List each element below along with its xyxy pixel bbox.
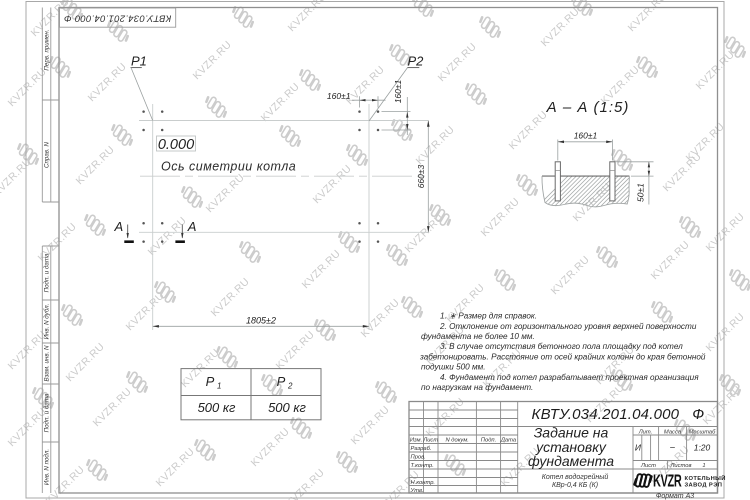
svg-text:KVZR: KVZR [653, 471, 682, 491]
svg-text:Масса: Масса [664, 430, 682, 436]
svg-text:1805±2: 1805±2 [246, 316, 276, 326]
svg-text:Инв. N подл.: Инв. N подл. [43, 449, 50, 485]
svg-text:А – А (1:5): А – А (1:5) [546, 99, 630, 116]
svg-text:Лит.: Лит. [638, 430, 653, 436]
svg-text:Лист: Лист [422, 438, 438, 444]
svg-text:Ось симетрии котла: Ось симетрии котла [161, 160, 296, 174]
svg-text:KVZR.RU: KVZR.RU [64, 341, 108, 385]
svg-text:Подп. и дата: Подп. и дата [43, 253, 50, 292]
svg-text:KVZR.RU: KVZR.RU [507, 109, 551, 153]
svg-text:Перв. примен.: Перв. примен. [43, 29, 50, 70]
svg-text:KVZR.RU: KVZR.RU [154, 446, 198, 490]
svg-text:KVZR.RU: KVZR.RU [191, 39, 235, 83]
svg-text:KVZR.RU: KVZR.RU [649, 239, 693, 283]
svg-text:N докум.: N докум. [445, 438, 468, 444]
svg-text:Формат А3: Формат А3 [656, 493, 694, 500]
svg-text:KVZR.RU: KVZR.RU [349, 404, 393, 448]
svg-text:KVZR.RU: KVZR.RU [694, 49, 738, 93]
svg-text:–: – [669, 442, 675, 452]
svg-text:KVZR.RU: KVZR.RU [359, 297, 403, 341]
svg-text:КВТУ.034.201.04.000 Ф: КВТУ.034.201.04.000 Ф [532, 406, 705, 423]
svg-text:KVZR.RU: KVZR.RU [704, 211, 748, 255]
svg-text:KVZR.RU: KVZR.RU [626, 0, 670, 34]
svg-text:P1: P1 [131, 54, 147, 69]
svg-text:Масштаб: Масштаб [689, 430, 716, 436]
svg-text:1: 1 [217, 382, 221, 391]
svg-text:Утв.: Утв. [410, 488, 424, 494]
svg-text:Пров.: Пров. [411, 455, 426, 461]
svg-text:A: A [114, 219, 124, 234]
svg-text:KVZR.RU: KVZR.RU [249, 426, 293, 470]
svg-text:P: P [277, 374, 286, 389]
svg-text:160±1: 160±1 [327, 91, 351, 101]
svg-text:KVZR.RU: KVZR.RU [549, 254, 593, 298]
svg-text:Справ. N: Справ. N [43, 142, 50, 168]
svg-text:по нагрузкам на фундамент.: по нагрузкам на фундамент. [421, 383, 533, 392]
svg-text:KVZR.RU: KVZR.RU [91, 386, 135, 430]
svg-text:Подп.: Подп. [481, 438, 496, 444]
svg-text:KVZR.RU: KVZR.RU [86, 61, 130, 105]
svg-text:KVZR.RU: KVZR.RU [300, 248, 344, 292]
svg-text:500 кг: 500 кг [268, 400, 306, 415]
svg-text:50±1: 50±1 [636, 183, 646, 202]
svg-text:1: 1 [702, 463, 705, 469]
svg-text:подушки 500 мм.: подушки 500 мм. [421, 363, 486, 372]
svg-text:3. В случае отсутствия бетонно: 3. В случае отсутствия бетонного пола пл… [440, 342, 683, 351]
svg-text:KVZR.RU: KVZR.RU [204, 172, 248, 216]
svg-text:2. Отклонение от горизонтально: 2. Отклонение от горизонтального уровня … [439, 322, 697, 331]
svg-text:фундамента не более 10 мм.: фундамента не более 10 мм. [421, 332, 535, 341]
svg-text:Взам. инв. N: Взам. инв. N [43, 345, 50, 382]
svg-text:KVZR.RU: KVZR.RU [414, 124, 458, 168]
svg-text:Котел водогрейный: Котел водогрейный [542, 473, 609, 481]
svg-text:0.000: 0.000 [158, 137, 194, 153]
svg-text:КВр-0,4 КБ (К): КВр-0,4 КБ (К) [552, 482, 598, 489]
svg-text:Инв. N дубл.: Инв. N дубл. [43, 304, 50, 340]
svg-text:KVZR.RU: KVZR.RU [74, 144, 118, 188]
svg-text:P: P [206, 374, 215, 389]
svg-text:1. ∗ Размер для справок.: 1. ∗ Размер для справок. [440, 312, 537, 321]
svg-text:2: 2 [287, 382, 293, 391]
svg-text:забетонировать. Расстояние от: забетонировать. Расстояние от осей крайн… [419, 352, 706, 361]
svg-text:Изм.: Изм. [410, 438, 422, 444]
svg-text:Разраб.: Разраб. [411, 446, 432, 452]
svg-text:KVZR.RU: KVZR.RU [403, 212, 447, 256]
svg-text:КОТЕЛЬНЫЙ: КОТЕЛЬНЫЙ [685, 474, 726, 482]
svg-text:P2: P2 [408, 54, 425, 69]
svg-text:фундамента: фундамента [528, 453, 614, 469]
svg-text:KVZR.RU: KVZR.RU [259, 81, 303, 125]
svg-text:KVZR.RU: KVZR.RU [209, 276, 253, 320]
svg-text:A: A [187, 219, 197, 234]
svg-text:KVZR.RU: KVZR.RU [539, 6, 583, 50]
svg-text:Т.контр.: Т.контр. [411, 463, 434, 469]
svg-text:Лист: Лист [640, 463, 656, 469]
svg-text:Н.контр.: Н.контр. [411, 480, 436, 486]
svg-text:KVZR.RU: KVZR.RU [274, 329, 318, 373]
svg-text:КВТУ.034.201.04.000 Ф: КВТУ.034.201.04.000 Ф [64, 12, 172, 23]
svg-text:И: И [635, 443, 642, 453]
svg-text:KVZR.RU: KVZR.RU [311, 163, 355, 207]
svg-text:KVZR.RU: KVZR.RU [704, 311, 748, 355]
svg-text:ЗАВОД РЭП: ЗАВОД РЭП [685, 483, 723, 489]
svg-text:KVZR.RU: KVZR.RU [284, 467, 328, 500]
svg-text:160±1: 160±1 [393, 79, 403, 103]
svg-text:1:20: 1:20 [694, 443, 711, 453]
svg-text:660±3: 660±3 [416, 164, 426, 188]
svg-text:500 кг: 500 кг [198, 400, 236, 415]
svg-text:KVZR.RU: KVZR.RU [479, 196, 523, 240]
svg-text:Подп. и дата: Подп. и дата [43, 393, 50, 432]
svg-text:Дата: Дата [500, 438, 517, 444]
svg-text:4. Фундамент под котел разраба: 4. Фундамент под котел разрабатывает про… [440, 373, 699, 382]
svg-text:KVZR.RU: KVZR.RU [661, 151, 705, 195]
svg-text:KVZR.RU: KVZR.RU [286, 0, 330, 34]
svg-text:Листов: Листов [669, 463, 691, 469]
svg-text:160±1: 160±1 [574, 131, 598, 141]
svg-text:KVZR.RU: KVZR.RU [436, 41, 480, 85]
